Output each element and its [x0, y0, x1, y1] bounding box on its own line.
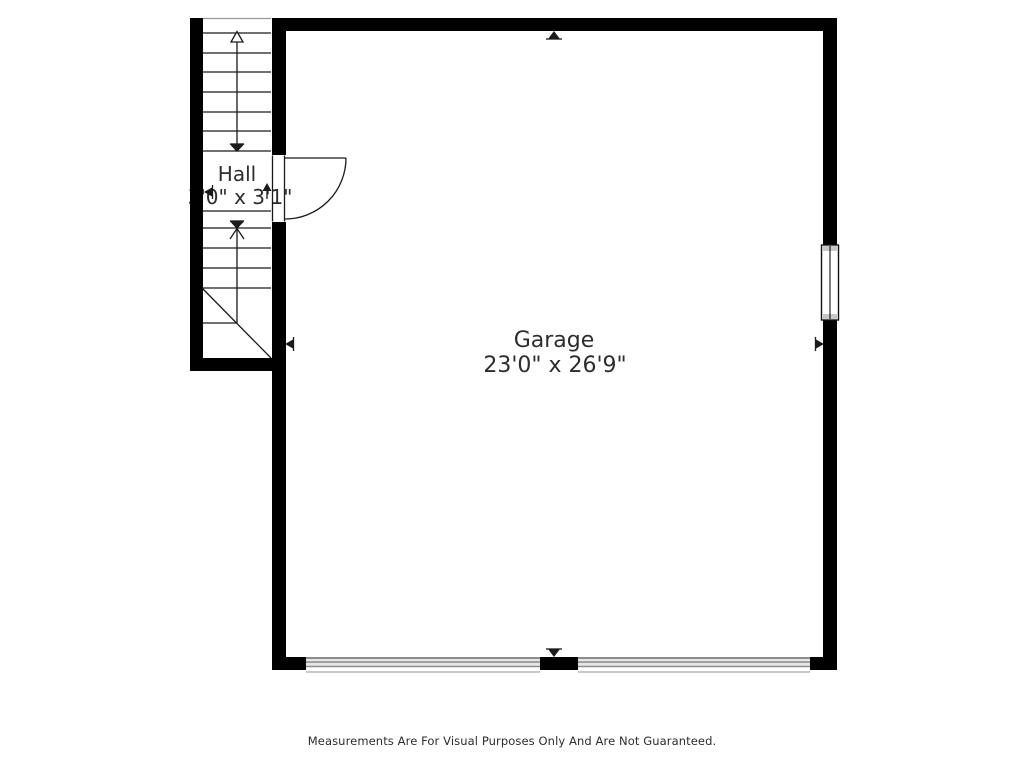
door-swing-arc	[285, 158, 346, 219]
hall-left-wall	[190, 18, 203, 371]
hall-room-dimensions: 3'0" x 3'1"	[188, 185, 293, 209]
garage-right-wall-lower	[823, 320, 837, 670]
dim-arrow-up-icon	[548, 31, 560, 39]
garage-right-wall-upper	[823, 18, 837, 245]
floor-plan: Hall 3'0" x 3'1"	[0, 0, 1024, 768]
disclaimer-text: Measurements Are For Visual Purposes Onl…	[0, 734, 1024, 748]
floor-plan-drawing: Hall 3'0" x 3'1"	[0, 0, 1024, 768]
window	[822, 245, 839, 320]
garage-door-left	[306, 657, 540, 672]
garage-room-dimensions: 23'0" x 26'9"	[483, 353, 626, 378]
garage-labels: Garage 23'0" x 26'9"	[483, 328, 626, 378]
garage-door-right	[578, 657, 810, 672]
garage-top-wall	[272, 18, 837, 31]
hall-garage-wall-above-door	[272, 18, 286, 155]
hall-bottom-wall	[190, 358, 286, 371]
dim-arrow-left-icon	[285, 340, 293, 349]
hall-room-name: Hall	[218, 162, 256, 186]
garage-left-wall	[272, 222, 286, 670]
garage-bottom-wall-center-pier	[540, 657, 578, 670]
garage-bottom-wall-left-block	[272, 657, 306, 670]
dim-arrow-down-icon	[548, 649, 560, 657]
garage-bottom-wall-right-block	[810, 657, 837, 670]
dim-arrow-down-icon	[231, 145, 243, 152]
hall-labels: Hall 3'0" x 3'1"	[188, 162, 293, 209]
dim-arrow-right-icon	[816, 340, 824, 349]
dim-arrow-down-icon	[231, 222, 243, 229]
garage-room-name: Garage	[514, 328, 595, 353]
